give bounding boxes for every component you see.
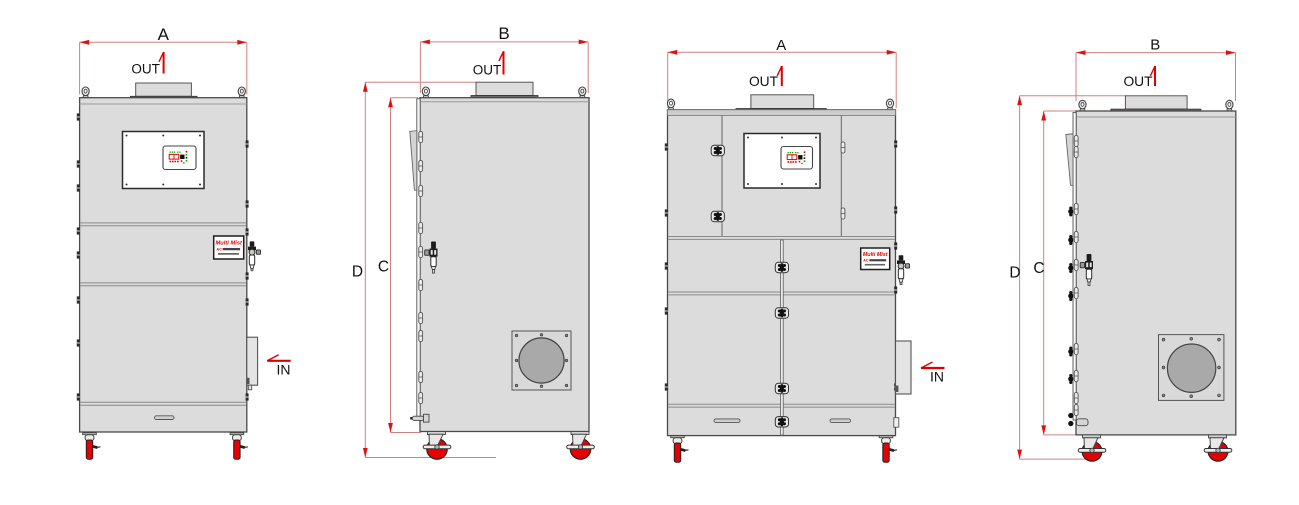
svg-text:D: D <box>352 264 363 281</box>
svg-text:OUT: OUT <box>473 63 502 78</box>
svg-text:A: A <box>158 25 170 44</box>
svg-text:D: D <box>1009 265 1020 282</box>
svg-text:B: B <box>1150 37 1160 54</box>
svg-text:C: C <box>1033 260 1044 277</box>
svg-text:OUT: OUT <box>131 62 160 77</box>
svg-text:C: C <box>378 259 389 276</box>
svg-text:OUT: OUT <box>1123 74 1153 89</box>
svg-text:B: B <box>498 24 509 43</box>
svg-text:OUT: OUT <box>749 74 779 89</box>
svg-text:IN: IN <box>930 369 944 385</box>
svg-text:Multi Mist: Multi Mist <box>863 252 888 258</box>
svg-text:AC: AC <box>863 259 869 263</box>
svg-text:AC: AC <box>216 246 222 251</box>
svg-text:A: A <box>776 37 786 54</box>
svg-text:IN: IN <box>277 362 291 378</box>
